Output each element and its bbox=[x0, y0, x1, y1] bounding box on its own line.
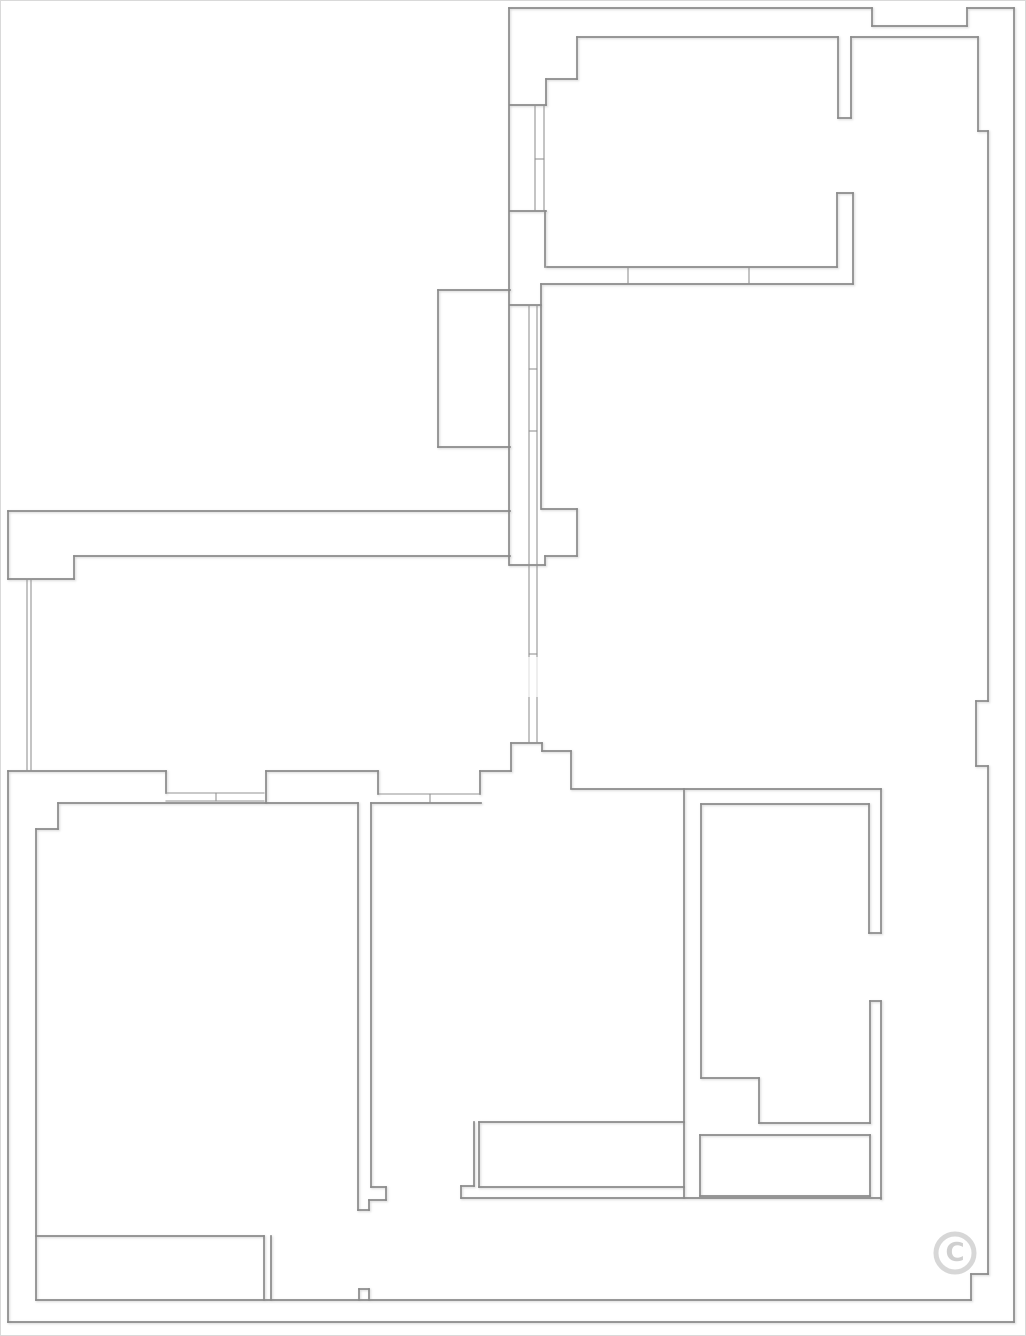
floor-plan-page: C bbox=[0, 0, 1026, 1336]
watermark-smudge bbox=[523, 657, 551, 697]
copyright-glyph: C bbox=[945, 1238, 964, 1268]
copyright-watermark-icon: C bbox=[936, 1234, 974, 1272]
window-glazing-group bbox=[27, 105, 749, 803]
walls-group bbox=[8, 8, 1014, 1322]
floor-plan-canvas: C bbox=[1, 1, 1026, 1336]
